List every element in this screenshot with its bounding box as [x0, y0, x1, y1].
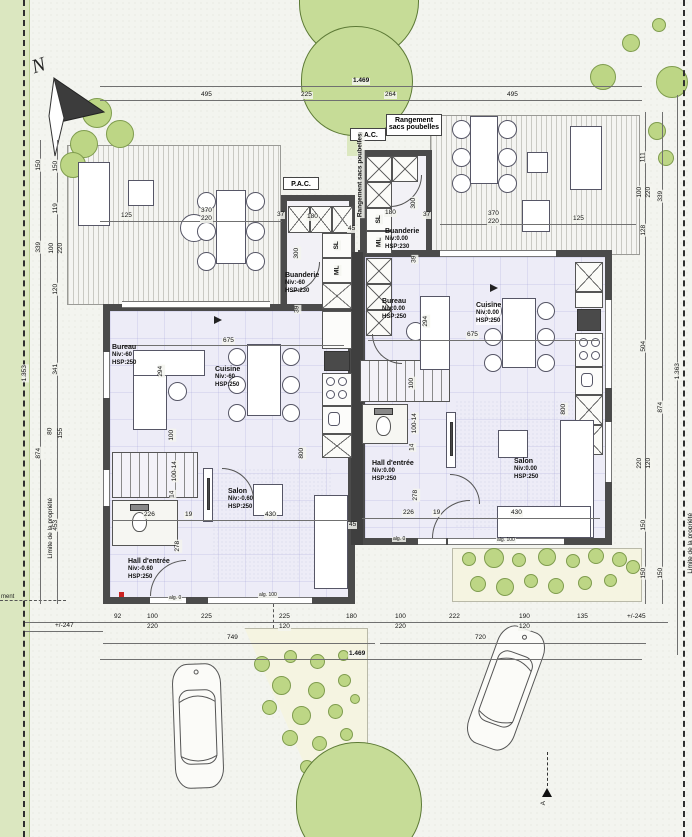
dim-label: 120 — [53, 283, 60, 296]
property-line-right — [683, 0, 685, 837]
bush-icon — [284, 650, 297, 663]
dim-label: 495 — [200, 92, 213, 99]
dim-label: 675 — [466, 332, 479, 339]
bush-icon — [262, 700, 277, 715]
chair — [452, 174, 471, 193]
chair — [197, 222, 216, 241]
chair — [537, 354, 555, 372]
bush-icon — [470, 576, 486, 592]
dim-label: 749 — [226, 635, 239, 642]
dim-label: 453 — [53, 519, 60, 532]
dim-label: 294 — [158, 365, 165, 378]
bush-icon — [622, 34, 640, 52]
threshold-label: alg. 0 — [392, 537, 406, 542]
dim-line — [362, 518, 600, 519]
chair — [498, 148, 517, 167]
dim-label: 370 — [487, 211, 500, 218]
dim-label: 339 — [658, 190, 665, 203]
sink-bowl — [581, 373, 593, 387]
room-label-buanderie-left: Buanderie Niv:-60 HSP:230 — [285, 272, 319, 295]
dim-line — [100, 100, 642, 101]
chair — [228, 348, 246, 366]
pac-box-right: P.A.C. — [350, 128, 386, 141]
dim-line — [25, 631, 103, 632]
dim-label: 128 — [641, 224, 648, 237]
bush-icon — [282, 730, 298, 746]
outdoor-side-table — [522, 200, 550, 232]
dim-label: 220 — [394, 624, 407, 631]
desk — [133, 350, 205, 376]
bush-icon — [292, 706, 311, 725]
dim-label: 1.469 — [352, 78, 370, 85]
rangement-label: Rangement — [395, 117, 433, 124]
chair — [228, 404, 246, 422]
bush-icon — [310, 654, 325, 669]
dim-line — [122, 345, 344, 346]
dim-label: 180 — [345, 614, 358, 621]
dim-label: 150 — [641, 519, 648, 532]
bush-icon — [566, 554, 580, 568]
dim-label: 100 — [169, 429, 176, 442]
kitchen-counter — [322, 311, 352, 349]
dim-label: 119 — [53, 202, 60, 214]
outdoor-sofa — [570, 126, 602, 190]
room-label-bureau-left: Bureau Niv:-60 HSP:250 — [112, 344, 136, 367]
survey-marker — [119, 592, 124, 597]
dim-label: 100-14 — [412, 412, 419, 434]
threshold-label: alg. 100 — [496, 538, 516, 543]
outdoor-side-table — [128, 180, 154, 206]
property-line-left — [23, 0, 25, 837]
dim-label: 37 — [422, 212, 431, 219]
dim-label: 495 — [506, 92, 519, 99]
bush-icon — [648, 122, 666, 140]
dim-label: 100 — [409, 377, 416, 390]
dim-label: 220 — [637, 457, 644, 470]
dim-label: 300 — [294, 247, 301, 260]
dim-label: 14 — [409, 443, 416, 452]
dim-line — [662, 112, 663, 604]
dim-label: 800 — [299, 447, 306, 460]
tv — [450, 422, 453, 456]
dim-line — [100, 221, 282, 222]
bush-icon — [658, 150, 674, 166]
dim-label: 675 — [222, 338, 235, 345]
dim-label: 150 — [658, 567, 665, 580]
window — [122, 301, 270, 308]
bush-icon — [462, 552, 476, 566]
closet — [322, 283, 352, 309]
dim-label: 339 — [36, 241, 43, 254]
dim-label: 155 — [58, 427, 65, 440]
bush-icon — [524, 574, 538, 588]
dim-label: 220 — [487, 219, 500, 226]
room-label-bureau-right: Bureau Niv:0.00 HSP:250 — [382, 298, 406, 321]
coffee-table — [498, 430, 528, 458]
toilet — [376, 416, 391, 436]
bush-icon — [106, 120, 134, 148]
burner — [338, 377, 347, 386]
entry-arrow-icon — [214, 316, 222, 324]
dim-line — [380, 643, 646, 644]
chair — [498, 120, 517, 139]
dim-label: 120 — [646, 457, 653, 470]
dim-label: 19 — [432, 510, 441, 517]
storage-locker — [366, 156, 392, 182]
dim-label: +/-245 — [626, 614, 647, 621]
dim-label: 226 — [143, 512, 156, 519]
chair — [282, 404, 300, 422]
dim-line — [103, 643, 375, 644]
room-label-hall-right: Hall d'entrée Niv:0.00 HSP:250 — [372, 460, 414, 483]
room-label-hall-left: Hall d'entrée Niv:-0.60 HSP:250 — [128, 558, 170, 581]
svg-text:N: N — [28, 53, 50, 79]
room-label-cuisine-right: Cuisine Niv:0.00 HSP:250 — [476, 302, 501, 325]
window — [605, 300, 612, 388]
dim-label: 180 — [384, 210, 397, 217]
bush-icon — [588, 548, 604, 564]
dim-label: 220 — [146, 624, 159, 631]
bush-icon — [340, 728, 353, 741]
rangement-label: sacs poubelles — [389, 124, 439, 131]
dim-label: 1.353 — [22, 364, 29, 382]
rangement-label-left: Rangement sacs poubelles — [358, 132, 365, 218]
window — [103, 470, 110, 506]
dim-label: 100 — [49, 242, 56, 255]
threshold-label: alg. 0 — [168, 596, 182, 601]
room-label-buanderie-right: Buanderie Niv:0.00 HSP:230 — [385, 228, 419, 251]
dim-label: 800 — [561, 403, 568, 416]
chair — [484, 354, 502, 372]
dim-label: 264 — [384, 92, 397, 99]
dim-label: 874 — [36, 447, 43, 460]
room-label-salon-right: Salon Niv:0.00 HSP:250 — [514, 458, 538, 481]
dim-line — [25, 622, 668, 623]
bush-icon — [512, 553, 526, 567]
parasol-base — [527, 152, 548, 173]
bush-icon — [308, 682, 325, 699]
dim-label: 226 — [402, 510, 415, 517]
bush-icon — [612, 552, 627, 567]
dryer-label: SL — [376, 214, 383, 224]
dining-table — [247, 344, 281, 416]
bush-icon — [484, 548, 504, 568]
dim-label: 120 — [518, 624, 531, 631]
dim-label: 92 — [113, 614, 122, 621]
cistern — [374, 408, 393, 415]
dim-label: 150 — [53, 160, 60, 173]
dim-label: 80 — [47, 427, 54, 436]
dim-label: 720 — [474, 635, 487, 642]
dim-label: 100 — [146, 614, 159, 621]
dim-line — [40, 140, 41, 604]
site-plan-sheet: Limite de la propriété Limite de la prop… — [0, 0, 692, 837]
kitchen-counter — [575, 292, 603, 308]
chair — [246, 252, 265, 271]
dim-label: 180 — [306, 214, 319, 221]
dim-label: 504 — [641, 340, 648, 353]
bush-icon — [578, 576, 592, 590]
edge-note: ment — [1, 594, 14, 600]
dim-label: 220 — [58, 242, 65, 255]
bush-icon — [496, 578, 514, 596]
chair — [246, 192, 265, 211]
dim-label: 14 — [169, 490, 176, 499]
chair — [537, 302, 555, 320]
chair — [452, 120, 471, 139]
dim-label: 1.469 — [348, 651, 366, 658]
bush-icon — [548, 578, 564, 594]
dim-label: 100-14 — [172, 460, 179, 482]
chair — [246, 222, 265, 241]
property-line-right-label: Limite de la propriété — [688, 512, 692, 575]
dim-label: 341 — [53, 363, 60, 376]
dim-label: 430 — [264, 512, 277, 519]
desk — [420, 296, 450, 370]
dim-line — [100, 659, 642, 660]
outdoor-sofa — [78, 162, 110, 226]
closet — [366, 258, 392, 284]
dim-label: 225 — [200, 614, 213, 621]
dim-label: 39 — [411, 255, 418, 264]
chair — [197, 252, 216, 271]
dryer-label: SL — [334, 240, 341, 250]
chair — [282, 348, 300, 366]
rangement-box-right: Rangement sacs poubelles — [386, 114, 442, 136]
dim-label: 125 — [120, 213, 133, 220]
chair — [498, 174, 517, 193]
bush-icon — [338, 674, 351, 687]
dim-label: 430 — [510, 510, 523, 517]
washer-label: ML — [376, 237, 383, 248]
dim-label: 39 — [294, 305, 301, 314]
fridge — [324, 351, 350, 371]
burner — [326, 377, 335, 386]
dim-label: 100 — [637, 186, 644, 199]
bush-icon — [272, 676, 291, 695]
entry-door-right — [418, 538, 446, 545]
entry-arrow-icon — [490, 284, 498, 292]
section-arrow-icon — [542, 788, 552, 797]
cooktop — [575, 333, 603, 367]
dim-label: 220 — [646, 186, 653, 199]
window — [208, 597, 312, 604]
bush-icon — [626, 560, 640, 574]
burner — [338, 390, 347, 399]
chair — [537, 328, 555, 346]
window — [103, 352, 110, 398]
chair — [452, 148, 471, 167]
dim-label: 135 — [576, 614, 589, 621]
dim-label: 278 — [175, 540, 182, 553]
dim-label: 125 — [572, 216, 585, 223]
dim-label: 150 — [36, 159, 43, 172]
dim-label: 120 — [278, 624, 291, 631]
outdoor-dining-table — [470, 116, 498, 184]
bush-icon — [652, 18, 666, 32]
room-label-cuisine-left: Cuisine Niv:-60 HSP:250 — [215, 366, 240, 389]
car-icon — [457, 616, 555, 759]
outdoor-dining-table — [216, 190, 246, 264]
burner — [579, 351, 588, 360]
dim-line — [368, 340, 598, 341]
tv — [207, 478, 210, 510]
cistern — [130, 504, 149, 511]
dim-label: 37 — [276, 212, 285, 219]
dim-label: 225 — [300, 92, 313, 99]
dim-label: +/-247 — [54, 623, 75, 630]
window — [605, 422, 612, 482]
chair — [282, 376, 300, 394]
dim-label: 874 — [658, 401, 665, 414]
bush-icon — [350, 694, 360, 704]
threshold-label: alg. 100 — [258, 593, 278, 598]
fridge — [577, 309, 601, 331]
dining-table — [502, 298, 536, 368]
dim-line — [100, 86, 642, 87]
dim-label: 220 — [200, 216, 213, 223]
dim-label: 225 — [278, 614, 291, 621]
dim-line — [112, 520, 348, 521]
dim-label: 370 — [200, 208, 213, 215]
storage-locker — [366, 182, 392, 208]
dim-label: 150 — [641, 567, 648, 580]
dim-label: 1.363 — [675, 362, 682, 380]
dim-label: 111 — [641, 151, 648, 163]
bush-icon — [312, 736, 327, 751]
closet — [575, 262, 603, 292]
staircase — [112, 452, 198, 498]
dim-label: 100 — [394, 614, 407, 621]
dim-label: 278 — [413, 489, 420, 502]
car-icon — [168, 659, 229, 793]
dim-label: 45 — [348, 522, 357, 529]
bush-icon — [328, 704, 343, 719]
section-line — [547, 752, 548, 786]
dim-label: 45 — [347, 226, 356, 233]
guide-line — [273, 604, 274, 628]
burner — [591, 351, 600, 360]
desk-chair — [168, 382, 187, 401]
dim-label: 222 — [448, 614, 461, 621]
dim-label: 300 — [411, 197, 418, 210]
dim-label: 294 — [423, 315, 430, 328]
burner — [326, 390, 335, 399]
dim-label: 190 — [518, 614, 531, 621]
room-label-salon-left: Salon Niv:-0.60 HSP:250 — [228, 488, 253, 511]
section-label: A — [541, 800, 548, 806]
washer-label: ML — [334, 265, 341, 276]
sink-bowl — [328, 412, 340, 426]
sofa — [314, 495, 348, 589]
chair — [484, 328, 502, 346]
dim-label: 19 — [184, 512, 193, 519]
dim-line — [440, 224, 636, 225]
bush-icon — [604, 574, 617, 587]
closet — [322, 434, 352, 458]
pac-box-left: P.A.C. — [283, 177, 319, 190]
bush-icon — [538, 548, 556, 566]
window — [440, 250, 556, 257]
north-arrow-icon: N — [24, 48, 108, 160]
